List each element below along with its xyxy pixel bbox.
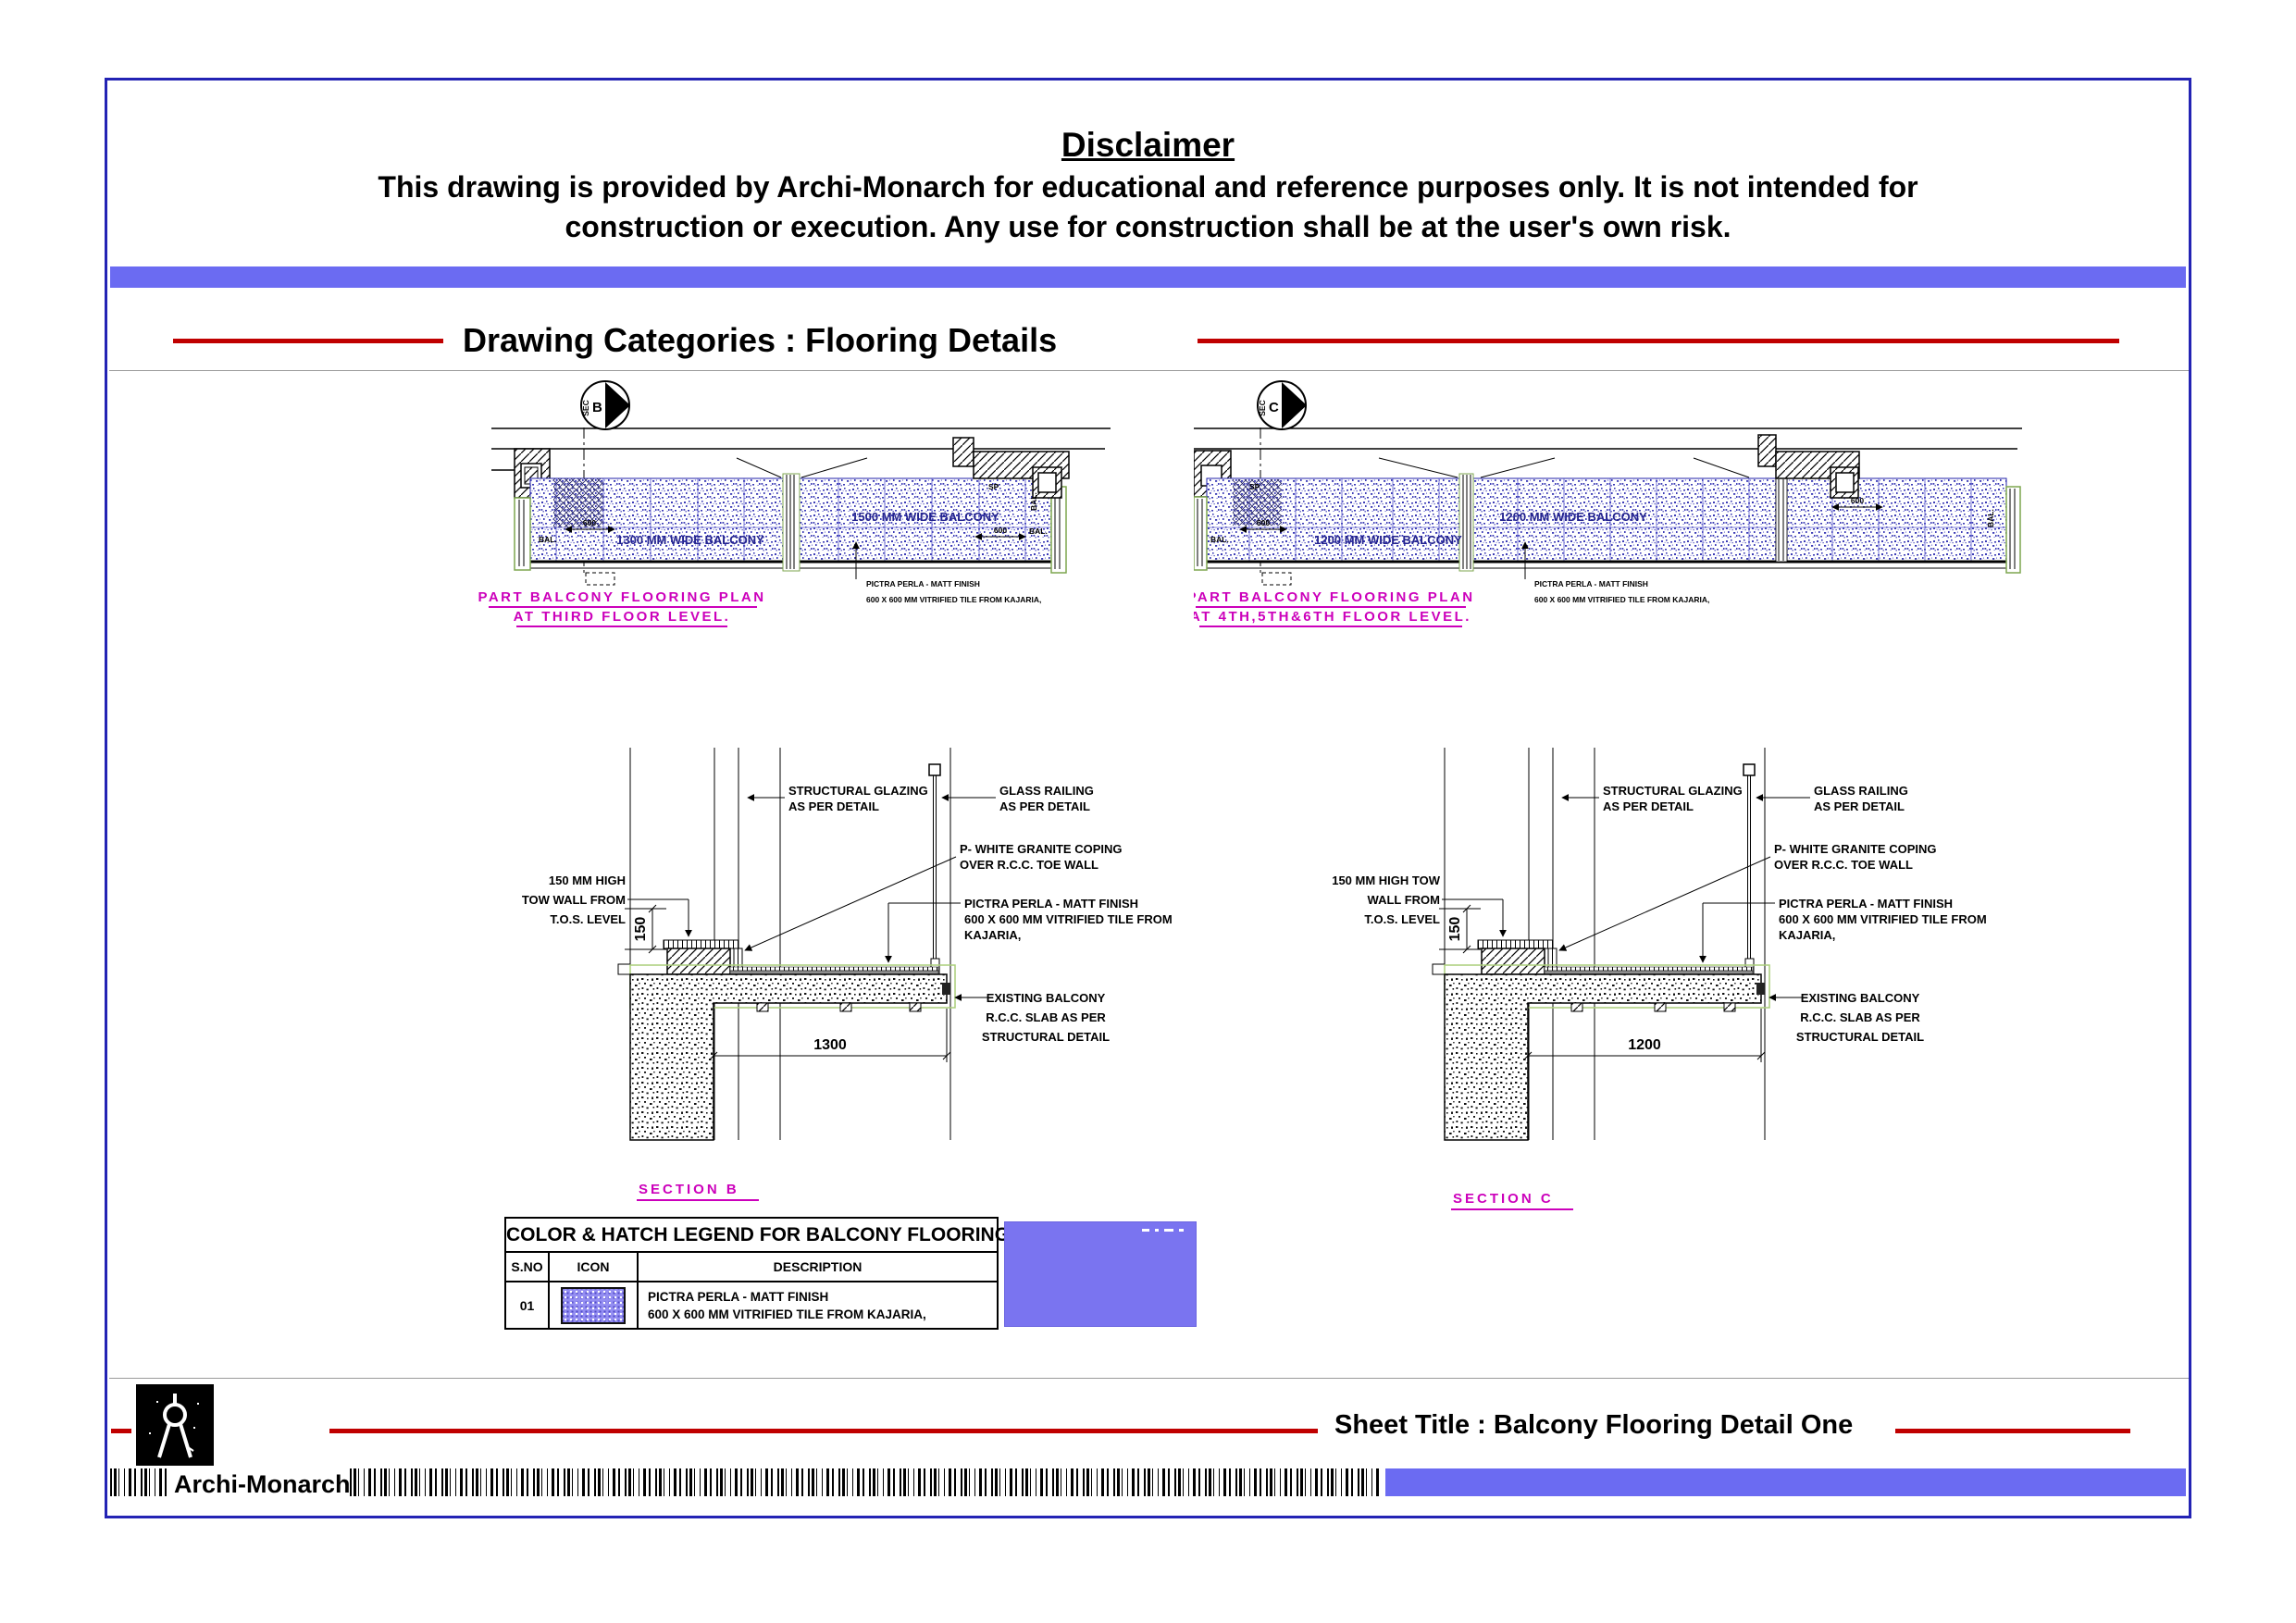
secC-railing-line1: GLASS RAILING xyxy=(1814,784,1908,798)
secC-tile-line1: PICTRA PERLA - MATT FINISH xyxy=(1779,897,1953,911)
secC-tow-line2: WALL FROM xyxy=(1368,893,1440,907)
secB-title-text: SECTION B xyxy=(639,1182,739,1197)
plan1-dim-600-a: 600 xyxy=(583,518,596,527)
secC-tow-line1: 150 MM HIGH TOW xyxy=(1332,873,1441,887)
accent-bar-bottom xyxy=(1385,1468,2186,1496)
secB-slab xyxy=(630,965,955,1140)
sheet-title: Sheet Title : Balcony Flooring Detail On… xyxy=(1334,1410,1853,1441)
legend-row-sno: 01 xyxy=(506,1282,550,1328)
archi-monarch-logo xyxy=(136,1384,214,1466)
secB-coping-line1: P- WHITE GRANITE COPING xyxy=(960,842,1123,856)
legend-row-icon-cell xyxy=(550,1282,639,1328)
secB-slab-line1: EXISTING BALCONY xyxy=(987,991,1106,1005)
plan1-sec-text: SEC xyxy=(581,400,590,415)
plan2-glass-leaders xyxy=(1379,458,1749,477)
barcode-left-segment xyxy=(110,1468,168,1496)
footer-rule-dash xyxy=(111,1429,131,1433)
secB-title: SECTION B xyxy=(637,1182,759,1200)
plan2-dim-600-b: 600 xyxy=(1851,496,1864,505)
plan2-title-line2: AT 4TH,5TH&6TH FLOOR LEVEL. xyxy=(1194,609,1471,625)
secB-dim-width: 1300 xyxy=(710,1009,950,1062)
plan1-dim-600-b: 600 xyxy=(994,526,1007,535)
legend-col-sno: S.NO xyxy=(506,1253,550,1282)
secB-label-slab: EXISTING BALCONY R.C.C. SLAB AS PER STRU… xyxy=(955,991,1110,1044)
plan2-sp: SP xyxy=(1249,482,1260,491)
plan2-note-line2: 600 X 600 MM VITRIFIED TILE FROM KAJARIA… xyxy=(1534,595,1709,604)
plan1-sp: SP xyxy=(988,482,999,491)
plan1-note-line2: 600 X 600 MM VITRIFIED TILE FROM KAJARIA… xyxy=(866,595,1041,604)
secB-coping-line2: OVER R.C.C. TOE WALL xyxy=(960,858,1098,872)
secC-label-glazing: STRUCTURAL GLAZING AS PER DETAIL xyxy=(1562,784,1743,813)
secB-tow-line3: T.O.S. LEVEL xyxy=(550,912,626,926)
secC-tow-line3: T.O.S. LEVEL xyxy=(1364,912,1440,926)
secB-dim-width-text: 1300 xyxy=(813,1037,847,1053)
tile-color-swatch xyxy=(1004,1221,1197,1327)
legend-col-desc: DESCRIPTION xyxy=(639,1253,997,1282)
secB-slab-line3: STRUCTURAL DETAIL xyxy=(982,1030,1110,1044)
secC-slab-line3: STRUCTURAL DETAIL xyxy=(1796,1030,1924,1044)
secB-tile-line3: KAJARIA, xyxy=(964,928,1021,942)
compass-icon xyxy=(136,1384,214,1466)
category-heading: Drawing Categories : Flooring Details xyxy=(463,321,1057,360)
secC-glazing-line1: STRUCTURAL GLAZING xyxy=(1603,784,1743,798)
tile-hatch-swatch-icon xyxy=(561,1287,626,1324)
balcony-plan-upper-floors: SEC C xyxy=(1194,370,2036,648)
footer-rule-right xyxy=(1895,1429,2130,1433)
secC-slab-line2: R.C.C. SLAB AS PER xyxy=(1800,1010,1920,1024)
disclaimer-line1: This drawing is provided by Archi-Monarc… xyxy=(105,170,2191,204)
secC-slab-line1: EXISTING BALCONY xyxy=(1801,991,1920,1005)
secC-title: SECTION C xyxy=(1451,1191,1573,1209)
footer-rule-left xyxy=(329,1429,1318,1433)
secC-coping-line2: OVER R.C.C. TOE WALL xyxy=(1774,858,1913,872)
legend-row-desc: PICTRA PERLA - MATT FINISH 600 X 600 MM … xyxy=(639,1282,997,1328)
secB-label-tile: PICTRA PERLA - MATT FINISH 600 X 600 MM … xyxy=(888,897,1173,962)
legend-title: COLOR & HATCH LEGEND FOR BALCONY FLOORIN… xyxy=(506,1219,997,1253)
section-b-drawing: 150 1300 STRUCTURAL GLAZING AS PER DETAI… xyxy=(389,740,1222,1221)
secB-tile-line2: 600 X 600 MM VITRIFIED TILE FROM xyxy=(964,912,1173,926)
secC-dim-width-text: 1200 xyxy=(1628,1037,1661,1053)
plan1-sec-letter: B xyxy=(592,400,602,415)
secB-slab-line2: R.C.C. SLAB AS PER xyxy=(986,1010,1106,1024)
secC-dim-150: 150 xyxy=(1439,905,1481,953)
secC-railing-line2: AS PER DETAIL xyxy=(1814,799,1905,813)
balcony-plan-third-floor: SEC B xyxy=(463,370,1185,648)
secB-glazing-line1: STRUCTURAL GLAZING xyxy=(788,784,928,798)
plan1-bay1-label: 1300 MM WIDE BALCONY xyxy=(616,533,764,547)
secC-label-railing: GLASS RAILING AS PER DETAIL xyxy=(1756,784,1908,813)
secC-title-text: SECTION C xyxy=(1453,1191,1554,1207)
heading-rule-left xyxy=(173,339,443,343)
secB-label-railing: GLASS RAILING AS PER DETAIL xyxy=(942,784,1094,813)
secC-label-slab: EXISTING BALCONY R.C.C. SLAB AS PER STRU… xyxy=(1769,991,1924,1044)
plan2-note-line1: PICTRA PERLA - MATT FINISH xyxy=(1534,579,1648,588)
accent-bar-top xyxy=(110,266,2186,288)
section-c-drawing: 150 1200 STRUCTURAL GLAZING AS PER DETAI… xyxy=(1203,740,2036,1221)
plan1-bal-rot: BAL. xyxy=(1029,492,1038,511)
secC-dim-width: 1200 xyxy=(1524,1009,1765,1062)
barcode-main-segment xyxy=(350,1468,1381,1496)
secB-tile-line1: PICTRA PERLA - MATT FINISH xyxy=(964,897,1138,911)
plan1-title: PART BALCONY FLOORING PLAN AT THIRD FLOO… xyxy=(478,589,765,626)
disclaimer-title: Disclaimer xyxy=(105,126,2191,165)
plan1-bal-b: BAL. xyxy=(1029,527,1048,536)
secC-glazing-line2: AS PER DETAIL xyxy=(1603,799,1694,813)
secB-label-glazing: STRUCTURAL GLAZING AS PER DETAIL xyxy=(748,784,928,813)
legend-desc-line2: 600 X 600 MM VITRIFIED TILE FROM KAJARIA… xyxy=(648,1306,926,1323)
secB-glazing-line2: AS PER DETAIL xyxy=(788,799,879,813)
secB-dim150-text: 150 xyxy=(633,917,649,942)
secB-label-towwall: 150 MM HIGH TOW WALL FROM T.O.S. LEVEL xyxy=(522,873,689,936)
secB-railing-line2: AS PER DETAIL xyxy=(999,799,1090,813)
plan1-bal-a: BAL. xyxy=(539,535,557,544)
plan2-title-line1: PART BALCONY FLOORING PLAN xyxy=(1194,589,1475,605)
plan2-bay2-label: 1200 MM WIDE BALCONY xyxy=(1499,510,1647,524)
disclaimer-line2: construction or execution. Any use for c… xyxy=(105,210,2191,244)
legend-desc-line1: PICTRA PERLA - MATT FINISH xyxy=(648,1288,828,1306)
footer-separator xyxy=(109,1378,2189,1379)
secB-glass-railing xyxy=(929,764,940,974)
plan2-bal-rot: BAL. xyxy=(1986,509,1995,527)
plan2-title: PART BALCONY FLOORING PLAN AT 4TH,5TH&6T… xyxy=(1194,589,1475,626)
secC-dim150-text: 150 xyxy=(1447,917,1463,942)
secC-glass-railing xyxy=(1744,764,1755,974)
heading-rule-right xyxy=(1198,339,2119,343)
plan1-title-line1: PART BALCONY FLOORING PLAN xyxy=(478,589,765,605)
brand-name: Archi-Monarch xyxy=(170,1470,354,1499)
plan2-wall-lines xyxy=(1194,428,2022,470)
secC-label-towwall: 150 MM HIGH TOW WALL FROM T.O.S. LEVEL xyxy=(1332,873,1503,936)
secB-tow-line1: 150 MM HIGH xyxy=(549,873,626,887)
plan2-sec-letter: C xyxy=(1269,400,1279,415)
plan2-bay1-label: 1200 MM WIDE BALCONY xyxy=(1314,533,1462,547)
plan2-dim-600-a: 600 xyxy=(1257,518,1270,527)
secB-tow-line2: TOW WALL FROM xyxy=(522,893,626,907)
plan1-note-line1: PICTRA PERLA - MATT FINISH xyxy=(866,579,980,588)
plan1-mullion xyxy=(783,474,800,571)
secC-coping-line1: P- WHITE GRANITE COPING xyxy=(1774,842,1937,856)
legend-col-icon: ICON xyxy=(550,1253,639,1282)
plan2-bal-a: BAL. xyxy=(1210,535,1229,544)
secC-label-tile: PICTRA PERLA - MATT FINISH 600 X 600 MM … xyxy=(1703,897,1987,962)
secB-dim-150: 150 xyxy=(625,905,666,953)
secC-tile-line2: 600 X 600 MM VITRIFIED TILE FROM xyxy=(1779,912,1987,926)
plan1-glass-leaders xyxy=(737,458,867,477)
legend-table: COLOR & HATCH LEGEND FOR BALCONY FLOORIN… xyxy=(504,1217,999,1330)
secC-tile-line3: KAJARIA, xyxy=(1779,928,1835,942)
plan1-title-line2: AT THIRD FLOOR LEVEL. xyxy=(514,609,731,625)
plan2-sec-text: SEC xyxy=(1258,400,1267,415)
secB-railing-line1: GLASS RAILING xyxy=(999,784,1094,798)
plan1-bay2-label: 1500 MM WIDE BALCONY xyxy=(851,510,999,524)
drawing-sheet: Disclaimer This drawing is provided by A… xyxy=(0,0,2296,1623)
secC-slab xyxy=(1445,965,1769,1140)
